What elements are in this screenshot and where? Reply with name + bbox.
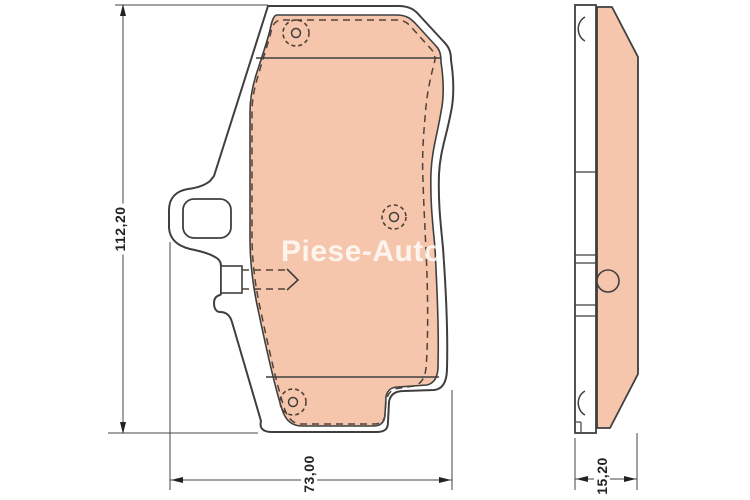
brake-pad-side-view	[575, 5, 638, 433]
dimension-width-label: 73,00	[301, 452, 317, 496]
brake-pad-technical-drawing: 112,20 73,00 15,20 Piese-Auto.co	[0, 0, 750, 500]
dimension-thickness-label: 15,20	[594, 454, 610, 498]
backplate-side	[575, 5, 596, 433]
lug-hole	[183, 199, 231, 238]
brake-pad-front-view	[169, 6, 453, 432]
watermark: Piese-Auto.co	[281, 237, 488, 267]
friction-material-side	[597, 7, 638, 428]
dimension-height-label: 112,20	[112, 203, 128, 254]
sensor-hole	[597, 270, 619, 292]
friction-material-front	[250, 15, 443, 426]
